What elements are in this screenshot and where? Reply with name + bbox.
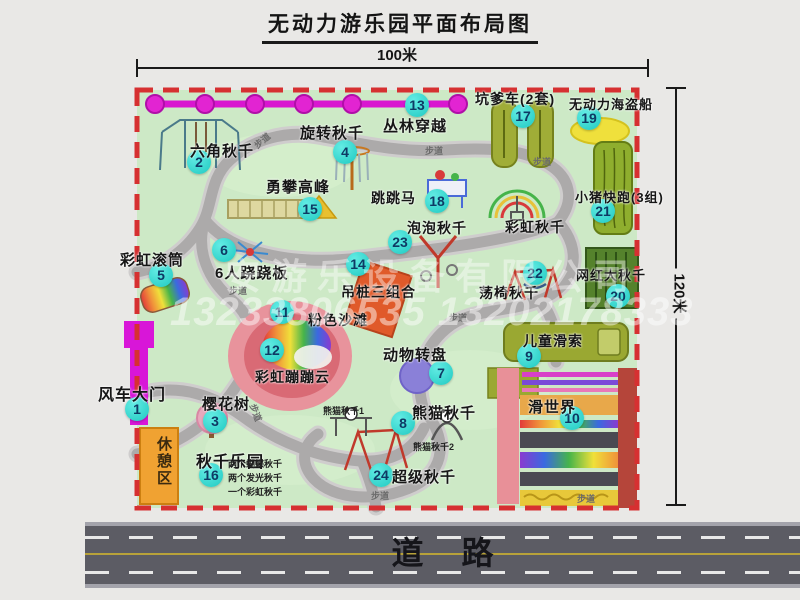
climbing-bridge-icon (228, 196, 336, 218)
layout-plan-page: 无动力游乐园平面布局图 (0, 0, 800, 600)
width-dimension-label: 100米 (372, 44, 422, 65)
page-title-text: 无动力游乐园平面布局图 (262, 8, 538, 44)
watermark-phone: 13233806535 13202178333 (170, 290, 694, 335)
road-label: 道路 (85, 522, 800, 580)
page-title: 无动力游乐园平面布局图 (0, 8, 800, 44)
rest-area-label: 休憩区 (146, 436, 174, 500)
pirate-ship-icon (571, 118, 629, 144)
pig-run-icon (594, 142, 632, 234)
animal-turntable-icon (400, 359, 434, 393)
